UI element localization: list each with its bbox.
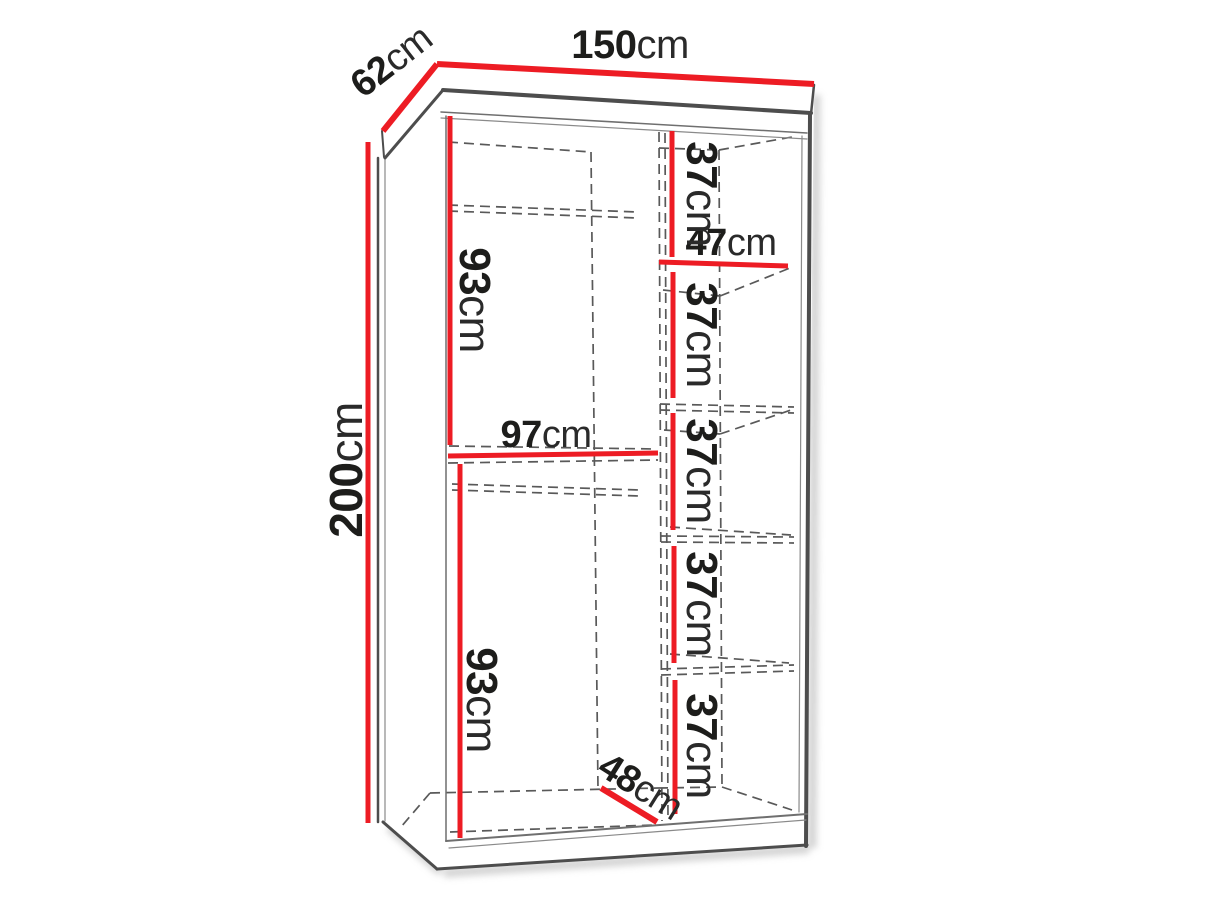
dim-lower-hanging-label: 93cm: [457, 647, 506, 753]
dim-shelf-gap-label-3: 37cm: [677, 418, 726, 524]
dim-upper-hanging-label: 93cm: [450, 247, 499, 353]
dim-height-label: 200cm: [320, 402, 372, 538]
dim-left-width-label: 97cm: [501, 414, 592, 456]
shelf-3-front-edge: [661, 536, 794, 537]
dim-shelf-gap-label-5: 37cm: [677, 693, 726, 799]
wardrobe-dimension-diagram: 150cm 62cm 200cm 93cm 93cm 97cm 47cm 37c…: [0, 0, 1214, 911]
dim-shelf-gap-label-2: 37cm: [677, 282, 726, 388]
dim-shelf-gap-label-1: 37cm: [677, 141, 726, 247]
dim-width-label: 150cm: [571, 23, 689, 67]
diagram-svg: 150cm 62cm 200cm 93cm 93cm 97cm 47cm 37c…: [0, 0, 1214, 911]
wardrobe-front-face: [377, 64, 814, 870]
shelf-3-front-edge: [661, 542, 794, 543]
dim-shelf-gap-label-4: 37cm: [677, 551, 726, 657]
